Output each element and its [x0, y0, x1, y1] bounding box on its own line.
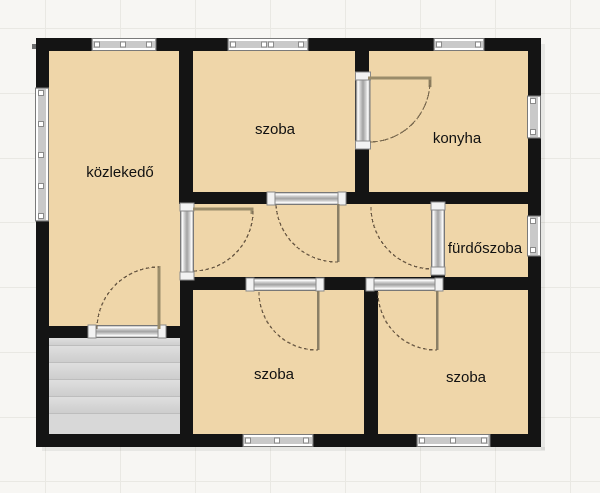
svg-text:közlekedő: közlekedő: [86, 164, 154, 181]
svg-text:fürdőszoba: fürdőszoba: [448, 240, 523, 257]
svg-text:szoba: szoba: [255, 121, 296, 138]
svg-text:szoba: szoba: [446, 369, 487, 386]
svg-text:konyha: konyha: [433, 130, 482, 147]
svg-text:szoba: szoba: [254, 366, 295, 383]
